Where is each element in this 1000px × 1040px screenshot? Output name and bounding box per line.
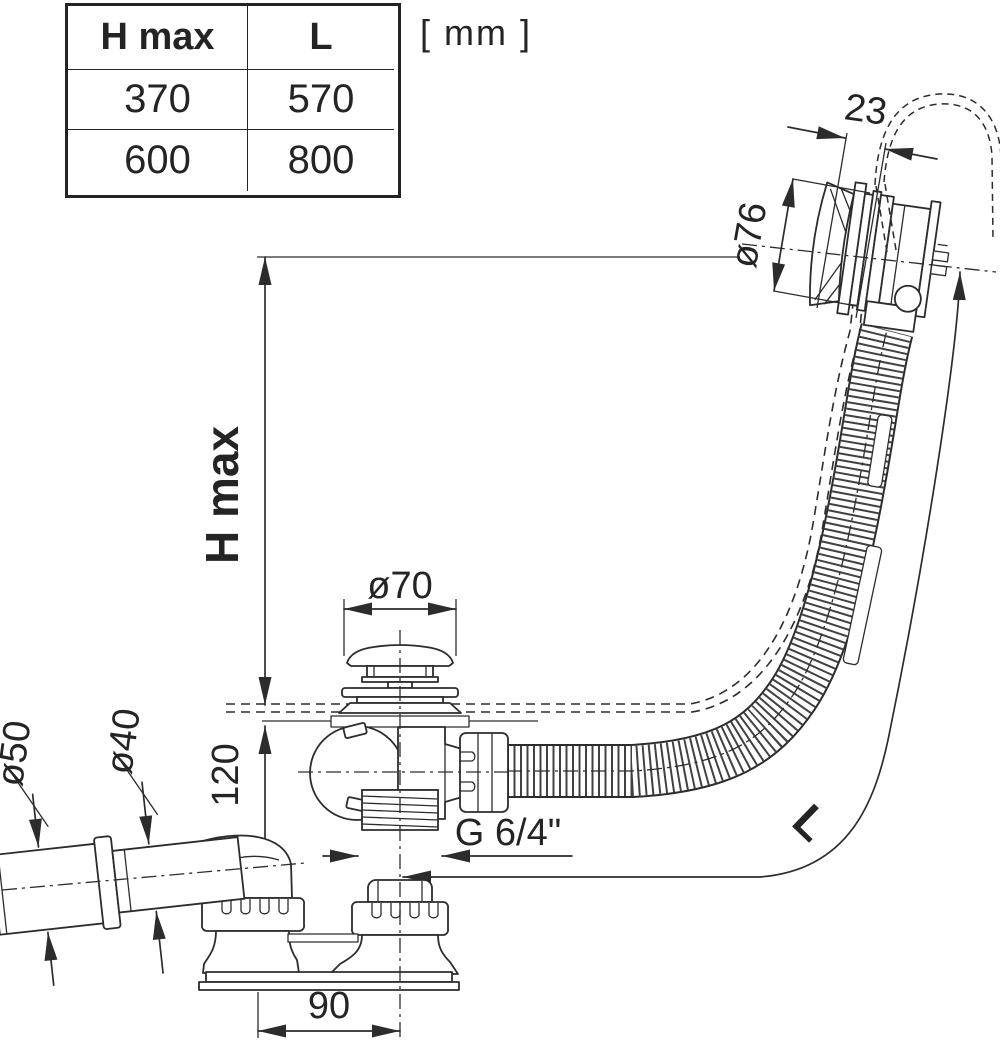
hmax-label: H max <box>196 426 248 564</box>
dim-90-label: 90 <box>308 985 350 1027</box>
drawing-sheet: H max L 370 570 600 800 [ mm ] H max 120 <box>0 0 1000 1040</box>
dim-dia76-label: ø76 <box>723 199 776 271</box>
dim-23-label: 23 <box>842 86 890 133</box>
dim-dia50-label: ø50 <box>0 718 40 789</box>
dimension-hmax: H max <box>196 257 740 705</box>
bathtub-outline <box>226 184 874 712</box>
dim-120-label: 120 <box>205 743 247 806</box>
technical-drawing: H max 120 ø70 L <box>0 0 1000 1040</box>
dim-length-label: L <box>783 794 839 851</box>
dim-dia40-label: ø40 <box>98 706 148 777</box>
dim-dia70-label: ø70 <box>367 565 432 607</box>
dimension-90: 90 <box>258 985 400 1038</box>
dim-thread-label: G 6/4" <box>455 812 561 854</box>
